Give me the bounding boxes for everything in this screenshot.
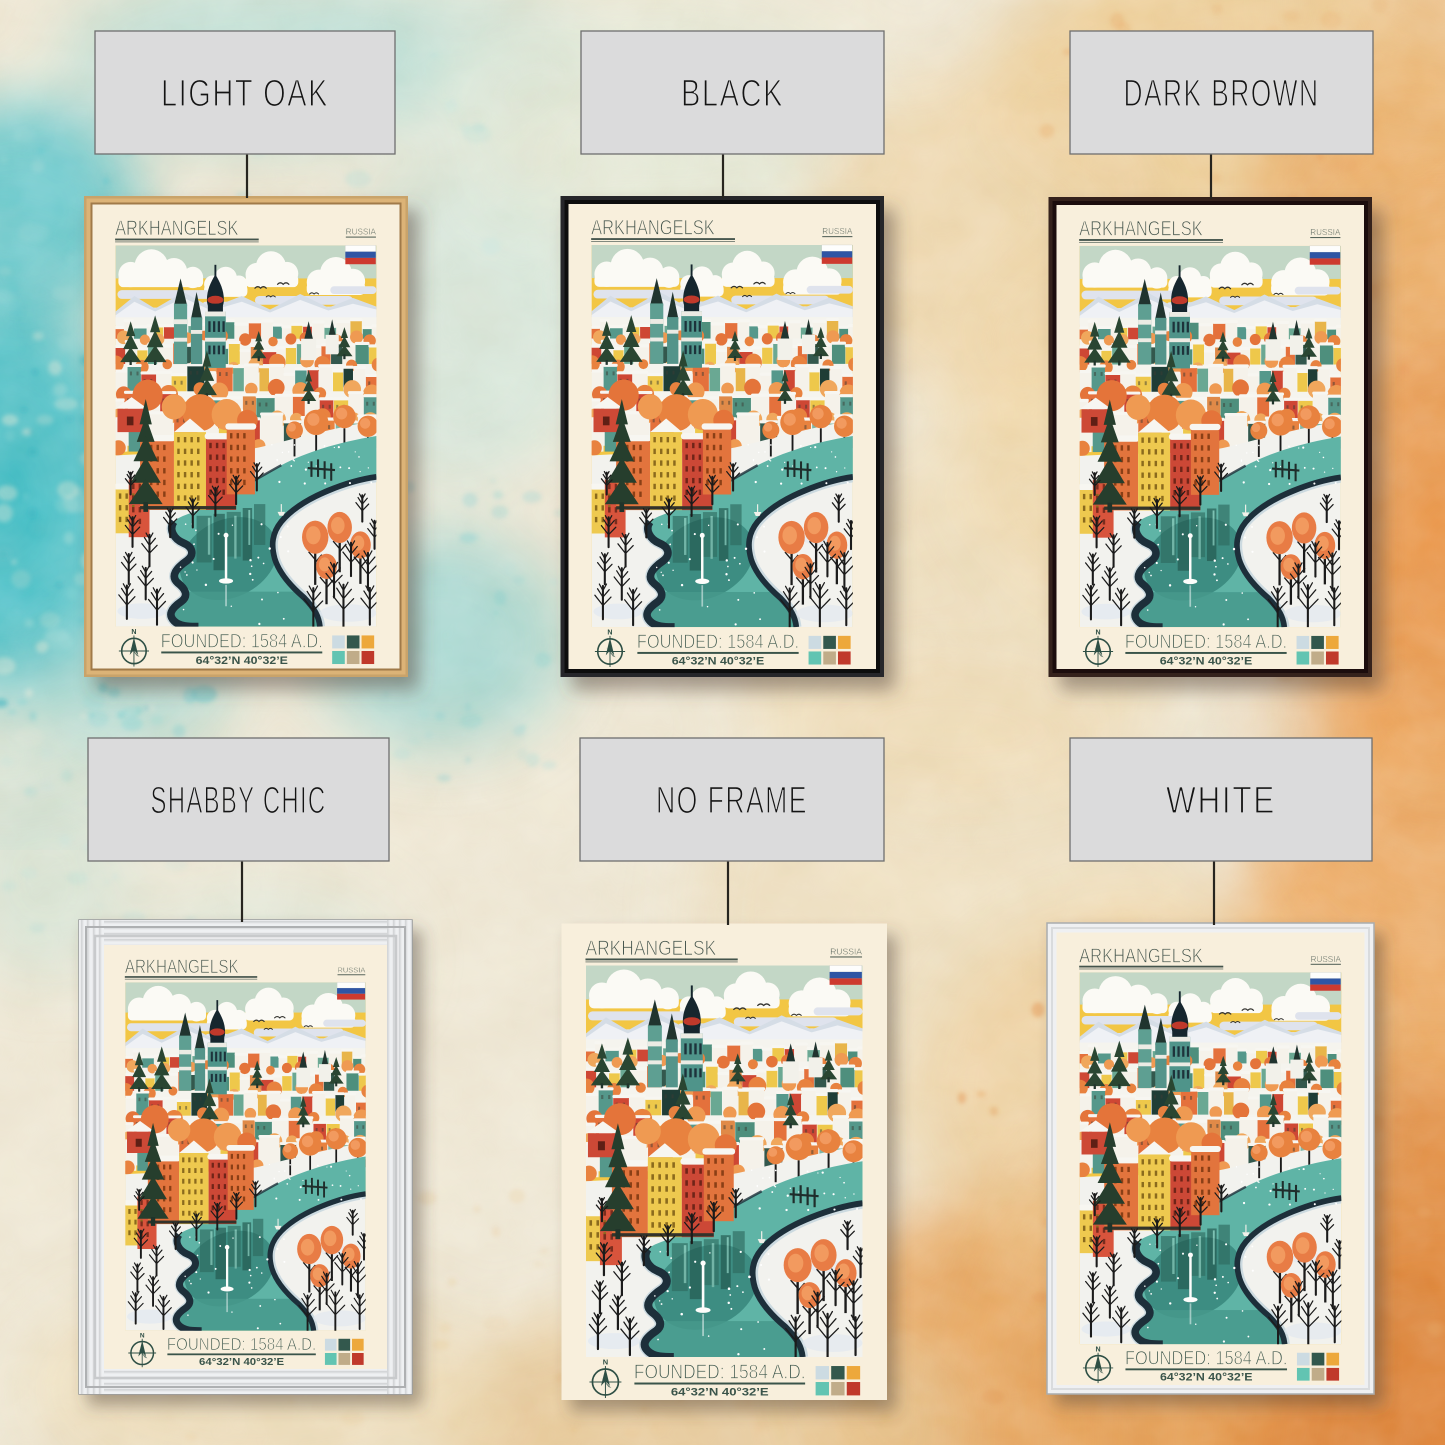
svg-text:BLACK: BLACK <box>681 73 784 115</box>
svg-text:WHITE: WHITE <box>1166 780 1276 822</box>
svg-text:SHABBY CHIC: SHABBY CHIC <box>151 780 327 822</box>
svg-text:NO FRAME: NO FRAME <box>656 780 808 822</box>
svg-text:DARK BROWN: DARK BROWN <box>1124 73 1320 115</box>
svg-text:LIGHT OAK: LIGHT OAK <box>161 73 329 115</box>
